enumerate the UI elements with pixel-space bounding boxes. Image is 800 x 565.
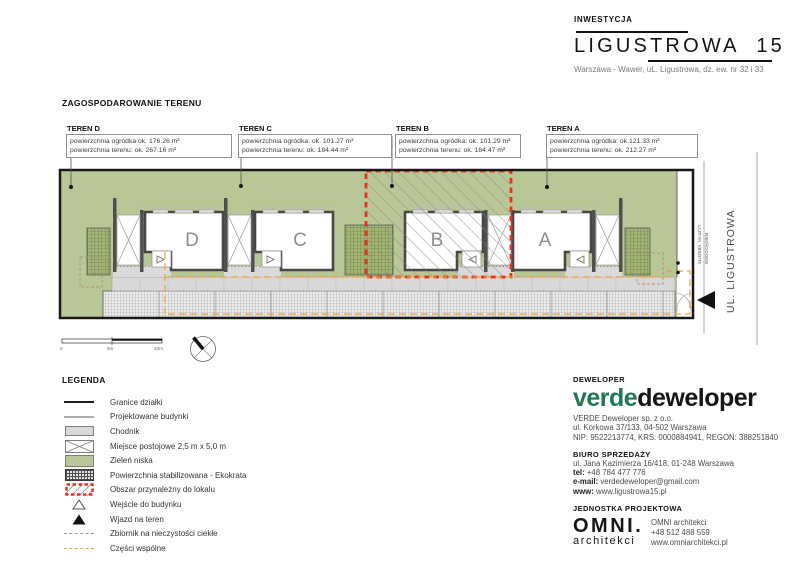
legend: LEGENDA Granice działki Projektowane bud…: [62, 375, 362, 556]
legend-item: Projektowane budynki: [62, 410, 362, 425]
site-entry-arrow-icon: [697, 291, 715, 309]
legend-item: Powierzchnia stabilizowana - Ekokrata: [62, 468, 362, 483]
terrain-label-b: TEREN B powierzchnia ogródka: ok. 101.29…: [395, 124, 521, 158]
sales-office-phone: tel: +48 784 477 776: [573, 468, 798, 477]
terrain-total-area: powierzchnia terenu: ok. 267.16 m²: [70, 146, 228, 155]
scale-zero: 0: [60, 346, 63, 351]
legend-item: Wjazd na teren: [62, 512, 362, 527]
north-arrow-icon: [191, 337, 216, 362]
legend-item: Części wspólne: [62, 541, 362, 556]
legend-item: Chodnik: [62, 424, 362, 439]
ekokrata-symbol: [65, 469, 94, 481]
sales-office-title: BIURO SPRZEDAŻY: [573, 450, 798, 459]
developer-registry: NIP: 9522213774, KRS: 0000884941, REGON:…: [573, 433, 798, 442]
terrain-title: TEREN A: [547, 124, 698, 133]
developer-address: ul. Korkowa 37/133, 04-502 Warszawa: [573, 423, 798, 432]
legend-item: Zbiornik na nieczystości ciekłe: [62, 526, 362, 541]
building-letter: A: [539, 230, 552, 251]
legend-item: Zieleń niska: [62, 453, 362, 468]
sales-office-www[interactable]: www: www.ligustrowa15.pl: [573, 487, 798, 496]
legend-item: Granice działki: [62, 395, 362, 410]
sales-office-email[interactable]: e-mail: verdedeweloper@gmail.com: [573, 477, 798, 486]
design-unit-www[interactable]: www.omniarchitekci.pl: [651, 538, 728, 548]
site-plan-sheet: INWESTYCJA LIGUSTROWA 15 Warszawa - Wawe…: [0, 0, 800, 565]
terrain-label-d: TEREN D powierzchnia ogródka ok. 176.26 …: [66, 124, 232, 158]
site-entry-symbol: [72, 514, 86, 525]
terrain-label-c: TEREN C powierzchnia ogródka: ok. 101.27…: [238, 124, 392, 158]
terrain-garden-area: powierzchnia ogródka: ok. 101.29 m²: [399, 137, 517, 146]
plot-boundary-symbol: [64, 401, 94, 403]
developer-info: DEWELOPER verdedeweloper VERDE Deweloper…: [573, 375, 798, 548]
design-unit-name: OMNI architekci: [651, 518, 728, 528]
terrain-garden-area: powierzchnia ogródka ok. 176.26 m²: [70, 137, 228, 146]
legend-title: LEGENDA: [62, 375, 362, 385]
septic-tank-symbol: [64, 533, 94, 534]
unit-area-symbol: [65, 483, 94, 496]
sidewalk-symbol: [65, 426, 94, 436]
scale-five: 5m: [107, 346, 114, 351]
terrain-title: TEREN C: [239, 124, 392, 133]
developer-section-label: DEWELOPER: [573, 375, 798, 384]
building-letter: C: [293, 230, 307, 251]
developer-company: VERDE Deweloper sp. z o.o.: [573, 414, 798, 423]
easement-note-line2: WODOCIĄGIEM: [704, 232, 709, 264]
terrain-label-a: TEREN A powierzchnia ogródka: ok.121.33 …: [546, 124, 698, 158]
parking-space-symbol: [65, 440, 94, 453]
terrain-total-area: powierzchnia terenu: ok. 184.47 m²: [399, 146, 517, 155]
design-unit-section-label: JEDNOSTKA PROJEKTOWA: [573, 504, 798, 513]
terrain-title: TEREN B: [396, 124, 521, 133]
teren-b-highlight: [366, 171, 511, 277]
street: UL. LIGUSTROWA: [704, 152, 757, 345]
design-unit-phone: +48 512 488 559: [651, 528, 728, 538]
easement-note-line1: SŁUŻEBN. NA UŻYT.: [697, 224, 702, 264]
low-greenery-symbol: [65, 455, 94, 467]
terrain-garden-area: powierzchnia ogródka: ok.121.33 m²: [550, 137, 694, 146]
scale-bar: 0 5m 10m: [60, 337, 163, 351]
terrain-total-area: powierzchnia terenu: ok. 212.27 m²: [550, 146, 694, 155]
terrain-title: TEREN D: [67, 124, 232, 133]
legend-item: Miejsce postojowe 2,5 m x 5,0 m: [62, 439, 362, 454]
scale-ten: 10m: [154, 346, 163, 351]
building-letter: D: [185, 230, 199, 251]
shared-parts-symbol: [64, 548, 94, 549]
verde-deweloper-logo: verdedeweloper: [573, 385, 798, 412]
sidewalk: [112, 277, 675, 291]
terrain-total-area: powierzchnia terenu: ok. 184.44 m²: [242, 146, 388, 155]
terrain-garden-area: powierzchnia ogródka: ok. 101.27 m²: [242, 137, 388, 146]
omni-architekci-logo: OMNI. architekci: [573, 517, 643, 548]
street-label: UL. LIGUSTROWA: [725, 210, 737, 313]
planned-buildings-symbol: [64, 416, 94, 418]
building-entrance-symbol: [72, 499, 86, 510]
sales-office-address: ul. Jana Kazimierza 16/418, 01-248 Warsz…: [573, 459, 798, 468]
legend-item: Obszar przynależny do lokalu: [62, 483, 362, 498]
legend-item: Wejście do budynku: [62, 497, 362, 512]
